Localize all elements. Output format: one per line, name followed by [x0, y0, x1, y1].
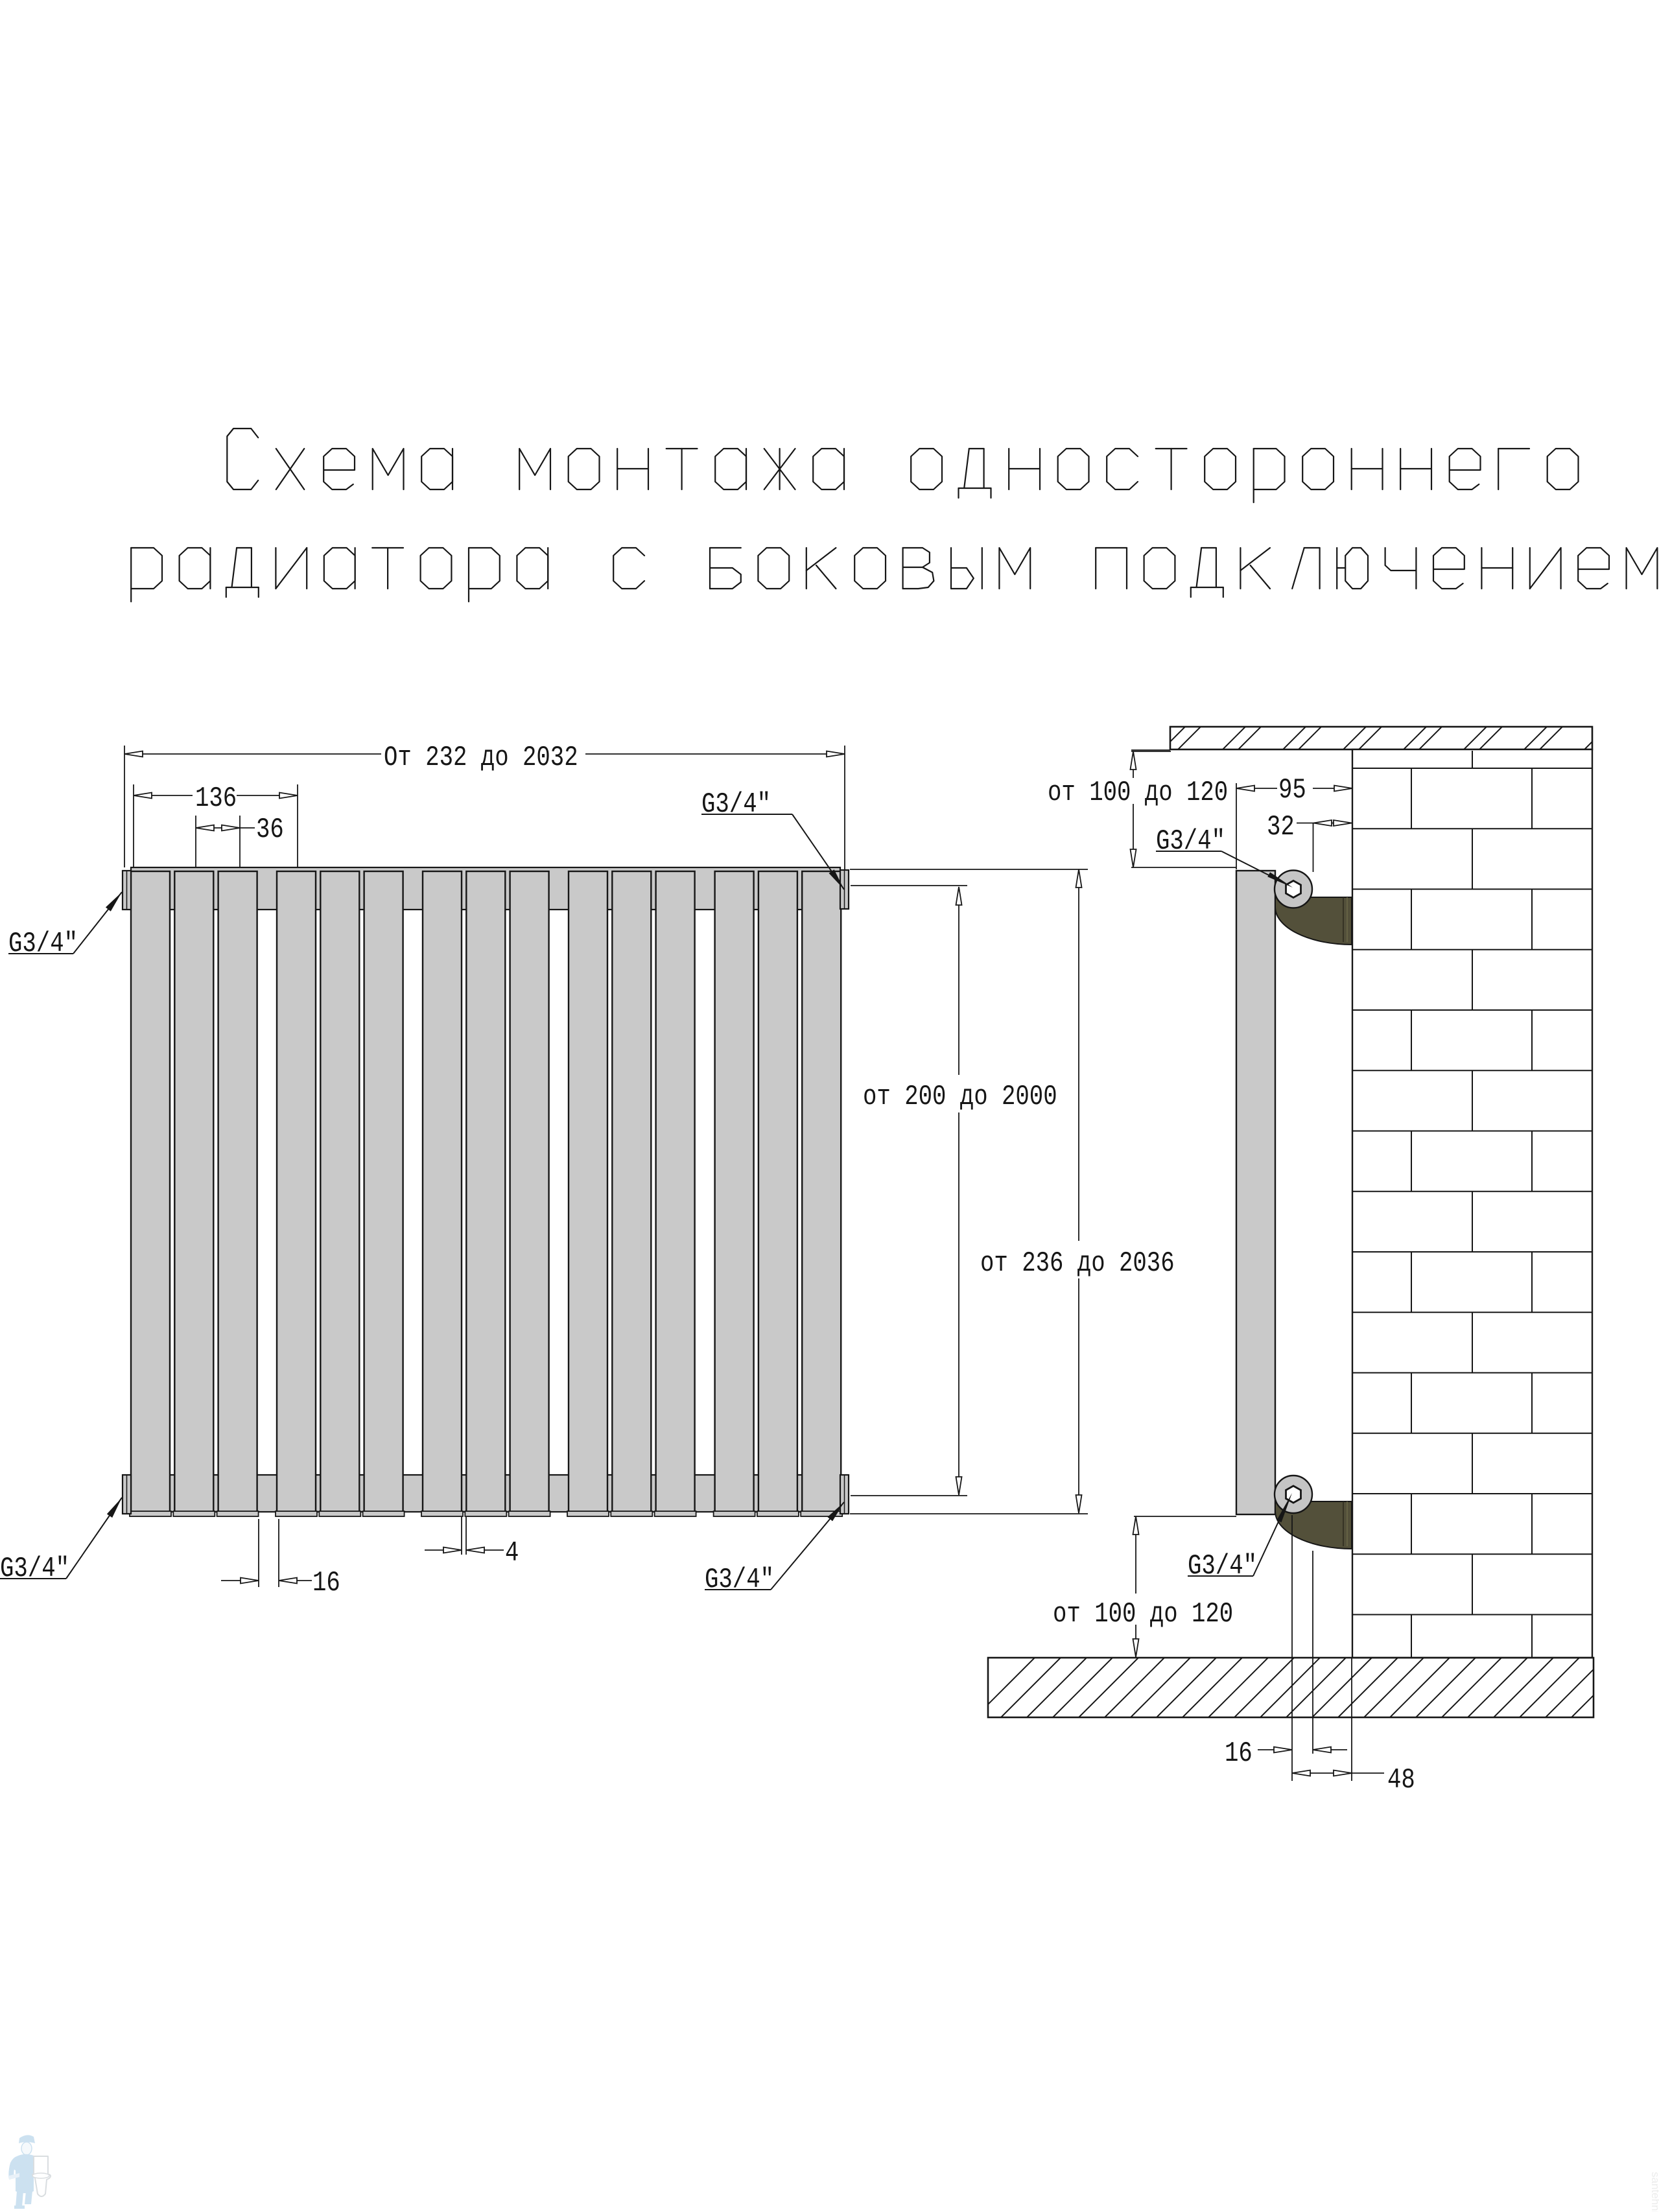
- svg-text:От 232 до 2032: От 232 до 2032: [384, 742, 578, 774]
- svg-text:santehnika-online.ru: santehnika-online.ru: [1649, 2172, 1659, 2212]
- svg-text:95: 95: [1278, 774, 1306, 806]
- svg-text:G3/4″: G3/4″: [705, 1564, 774, 1596]
- svg-text:от 236 до 2036: от 236 до 2036: [980, 1247, 1175, 1280]
- svg-text:16: 16: [312, 1567, 340, 1599]
- svg-text:G3/4″: G3/4″: [0, 1553, 69, 1585]
- svg-text:G3/4″: G3/4″: [1156, 825, 1225, 858]
- svg-text:G3/4″: G3/4″: [701, 788, 771, 821]
- svg-text:от 200 до 2000: от 200 до 2000: [863, 1081, 1057, 1113]
- svg-text:G3/4″: G3/4″: [8, 928, 78, 960]
- svg-text:136: 136: [195, 782, 237, 815]
- svg-text:16: 16: [1225, 1737, 1253, 1770]
- svg-text:от 100 до 120: от 100 до 120: [1053, 1598, 1233, 1630]
- svg-text:4: 4: [505, 1537, 519, 1570]
- svg-text:G3/4″: G3/4″: [1188, 1550, 1257, 1583]
- svg-text:32: 32: [1267, 811, 1295, 843]
- svg-text:48: 48: [1387, 1764, 1415, 1796]
- svg-text:от 100 до 120: от 100 до 120: [1048, 777, 1228, 809]
- svg-text:36: 36: [256, 814, 284, 846]
